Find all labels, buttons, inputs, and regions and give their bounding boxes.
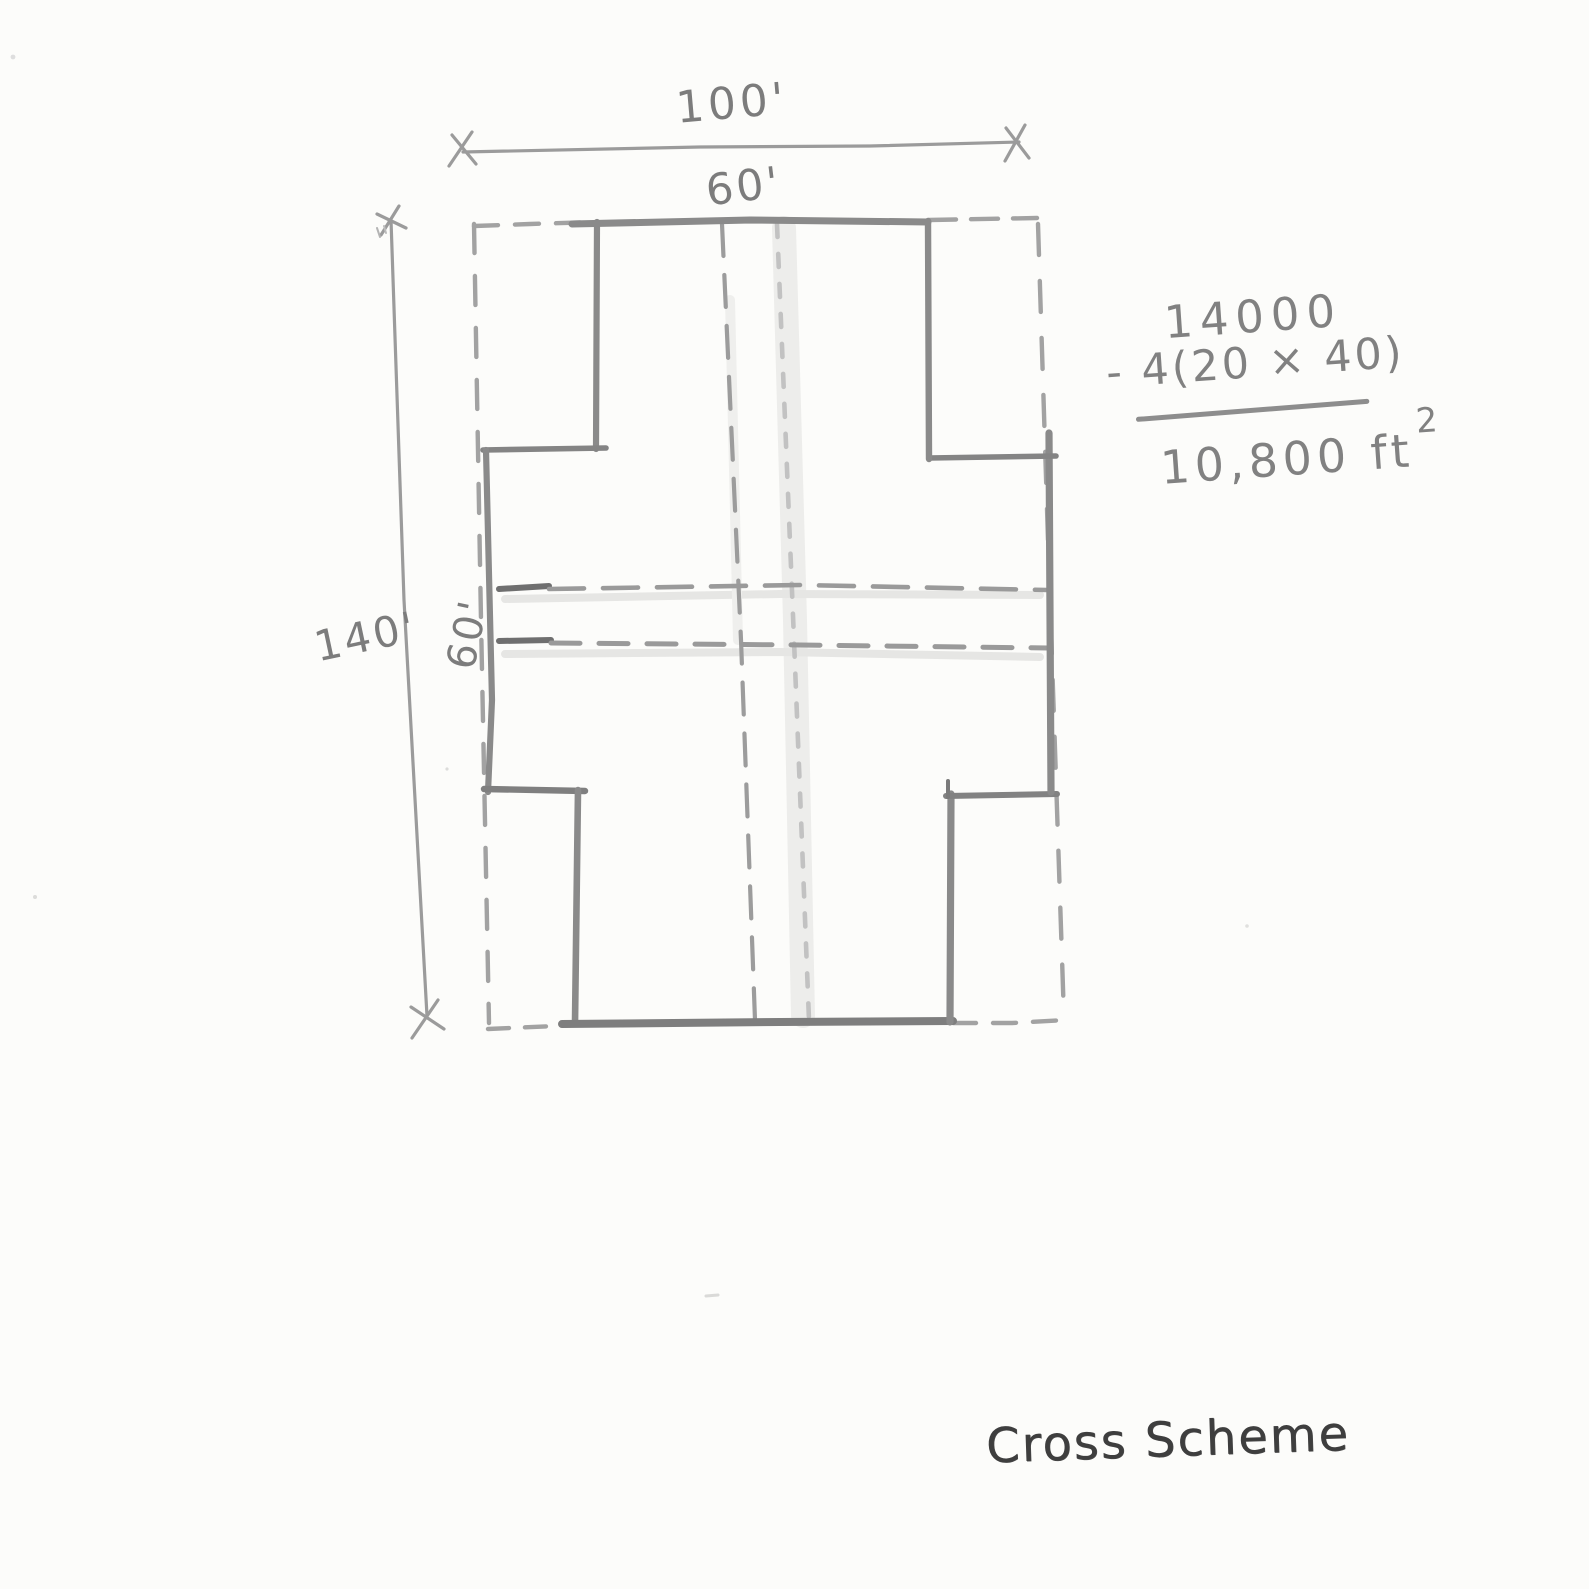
cross-middle-right-edge	[1049, 433, 1051, 792]
interior-horizontal-2-tick	[499, 640, 551, 641]
caption-cross-scheme: Cross Scheme	[985, 1410, 1350, 1471]
boundary-rectangle-dashed	[474, 218, 1066, 1029]
cross-top-edge	[572, 220, 928, 224]
cross-bottom-arm-left-edge	[575, 790, 578, 1023]
paper-specks	[11, 55, 1249, 1296]
boundary-top-right-dashed	[929, 218, 1037, 220]
eraser-ghost-marks	[505, 228, 1040, 1016]
paper-sheet: 100' 60' 140' 60' 14000 - 4(20 × 40) 10,…	[0, 0, 1589, 1589]
cross-top-arm-right-edge	[928, 221, 929, 459]
ghost-horizontal-2	[505, 652, 1040, 657]
cross-plan-sketch	[0, 0, 1589, 1589]
cross-outline	[483, 220, 1057, 1024]
speck-5	[445, 767, 448, 770]
cross-bottom-edge	[562, 1021, 953, 1024]
interior-horizontal-dashed-2	[551, 643, 1048, 648]
calc-result-exponent: 2	[1415, 400, 1439, 441]
speck-2	[706, 1295, 718, 1296]
top-dimension-shaft	[463, 142, 1019, 152]
cross-step-bottom-left	[484, 789, 585, 791]
interior-guide-lines	[499, 224, 1048, 1020]
cross-top-arm-left-edge	[596, 222, 597, 449]
ghost-horizontal-1	[505, 594, 1040, 599]
interior-horizontal-1-tick	[499, 586, 549, 589]
speck-1	[33, 895, 37, 899]
cross-step-top-right	[929, 456, 1056, 458]
top-width-label: 100'	[674, 77, 789, 131]
left-dimension-stray-mark-1	[377, 228, 380, 237]
cross-step-top-left	[483, 448, 606, 450]
top-arm-width-label: 60'	[704, 162, 784, 214]
speck-4	[11, 55, 16, 60]
boundary-bottom-right-dashed	[953, 1020, 1066, 1023]
top-dimension-left-tick-1	[452, 135, 476, 164]
top-dimension-line	[449, 125, 1029, 166]
speck-3	[1245, 924, 1249, 928]
cross-bottom-arm-right-edge	[950, 794, 951, 1022]
cross-step-bottom-right	[946, 794, 1057, 796]
